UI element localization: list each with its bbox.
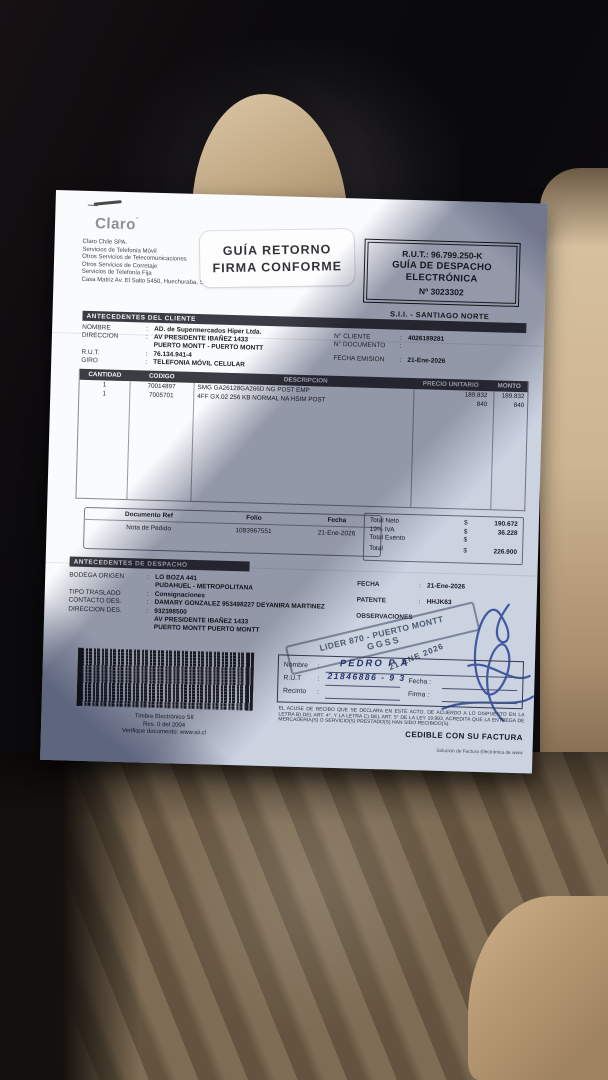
recinto-write-line — [325, 686, 400, 701]
return-guide-sticker: GUÍA RETORNO FIRMA CONFORME — [200, 229, 355, 287]
receipt-acknowledgement-box: Nombre: PEDRO P A R.U.T: 21846886 - 9 3 … — [277, 654, 524, 709]
column-header: Folio — [213, 514, 295, 523]
column-header: CANTIDAD — [80, 371, 130, 379]
photo-scene: Claro˘ Claro Chile SPA. Servicios de Tel… — [0, 0, 608, 1080]
column-header: MONTO — [494, 382, 528, 390]
paper-document: Claro˘ Claro Chile SPA. Servicios de Tel… — [40, 190, 548, 774]
document-type: ELECTRÓNICA — [406, 271, 478, 284]
items-table-body: 1 70014897 SMG GA26128GA266D NG POST EMP… — [76, 380, 527, 510]
claro-logo-tick: ˘ — [136, 216, 139, 225]
firma-label: Firma : — [400, 688, 442, 702]
sticker-line: GUÍA RETORNO — [223, 242, 332, 258]
timbre-electronico-text: Timbre Electrónico SII Res. 0 del 2004 V… — [76, 712, 253, 740]
handwritten-name: PEDRO P A — [340, 657, 410, 670]
claro-logo: Claro˘ — [95, 215, 139, 233]
fecha-label: Fecha : — [400, 675, 442, 689]
pen-scribble-mark — [94, 200, 122, 206]
reference-documents-box: Documento Ref Folio Fecha Nota de Pedido… — [83, 507, 382, 557]
pdf417-barcode — [77, 648, 255, 711]
client-right-fields: N° CLIENTE:4026189281 N° DOCUMENTO: FECH… — [333, 333, 526, 369]
document-number: Nº 3023302 — [419, 286, 464, 297]
column-header: Documento Ref — [85, 510, 213, 521]
company-info-lines: Claro Chile SPA. Servicios de Telefonía … — [81, 239, 208, 288]
handwritten-rut: 21846886 - 9 3 — [327, 670, 406, 685]
sticker-line: FIRMA CONFORME — [212, 259, 342, 275]
firma-write-line — [442, 689, 517, 704]
total-row: Total$226.900 — [369, 545, 517, 558]
rut-document-box: R.U.T.: 96.799.250-K GUÍA DE DESPACHO EL… — [363, 239, 521, 307]
seat-right-bolster — [540, 168, 608, 828]
column-header: PRECIO UNITARIO — [414, 380, 494, 389]
claro-logo-text: Claro — [95, 215, 136, 233]
totals-box: Total Neto$190.672 19% IVA$36.228 Total … — [363, 513, 524, 565]
cedible-label: CEDIBLE CON SU FACTURA — [363, 729, 523, 742]
invoice-provider-line: Solución de Factura Electrónica de www — [358, 747, 522, 757]
column-header: CODIGO — [130, 372, 194, 381]
items-table: CANTIDAD CODIGO DESCRIPCION PRECIO UNITA… — [75, 369, 528, 512]
